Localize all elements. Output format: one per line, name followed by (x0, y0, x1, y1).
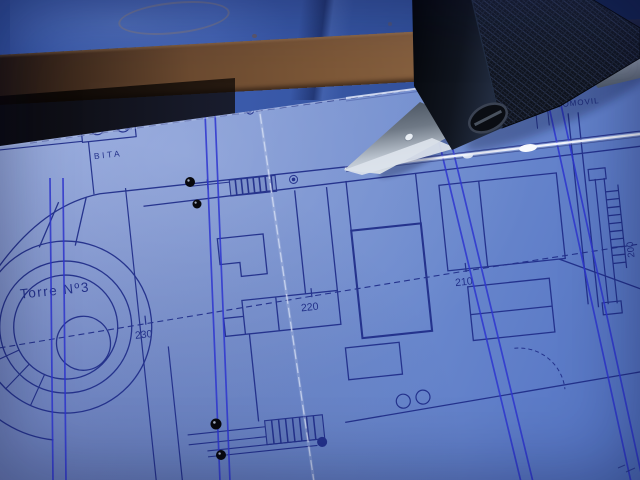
deck-fitting-tick (189, 177, 230, 191)
bollard-box (0, 111, 142, 208)
bollard-label: BITA (93, 148, 122, 161)
lower-deck-edge (343, 363, 640, 422)
photo-frame: 230 220 210 Torre Nº3 (0, 0, 640, 480)
frame-station-line: 230 220 210 (0, 240, 640, 358)
blueprint-and-knife-scene: 230 220 210 Torre Nº3 (0, 0, 640, 480)
corner-notation-mark (618, 465, 635, 472)
turret-circles (0, 185, 189, 480)
frame-number-220: 220 (300, 301, 319, 315)
frame-number-200: 200 (625, 241, 638, 258)
turret-label: Torre Nº3 (19, 279, 90, 301)
side-ladder-200: 200 (588, 165, 640, 314)
ink-guide-lines (50, 68, 640, 480)
